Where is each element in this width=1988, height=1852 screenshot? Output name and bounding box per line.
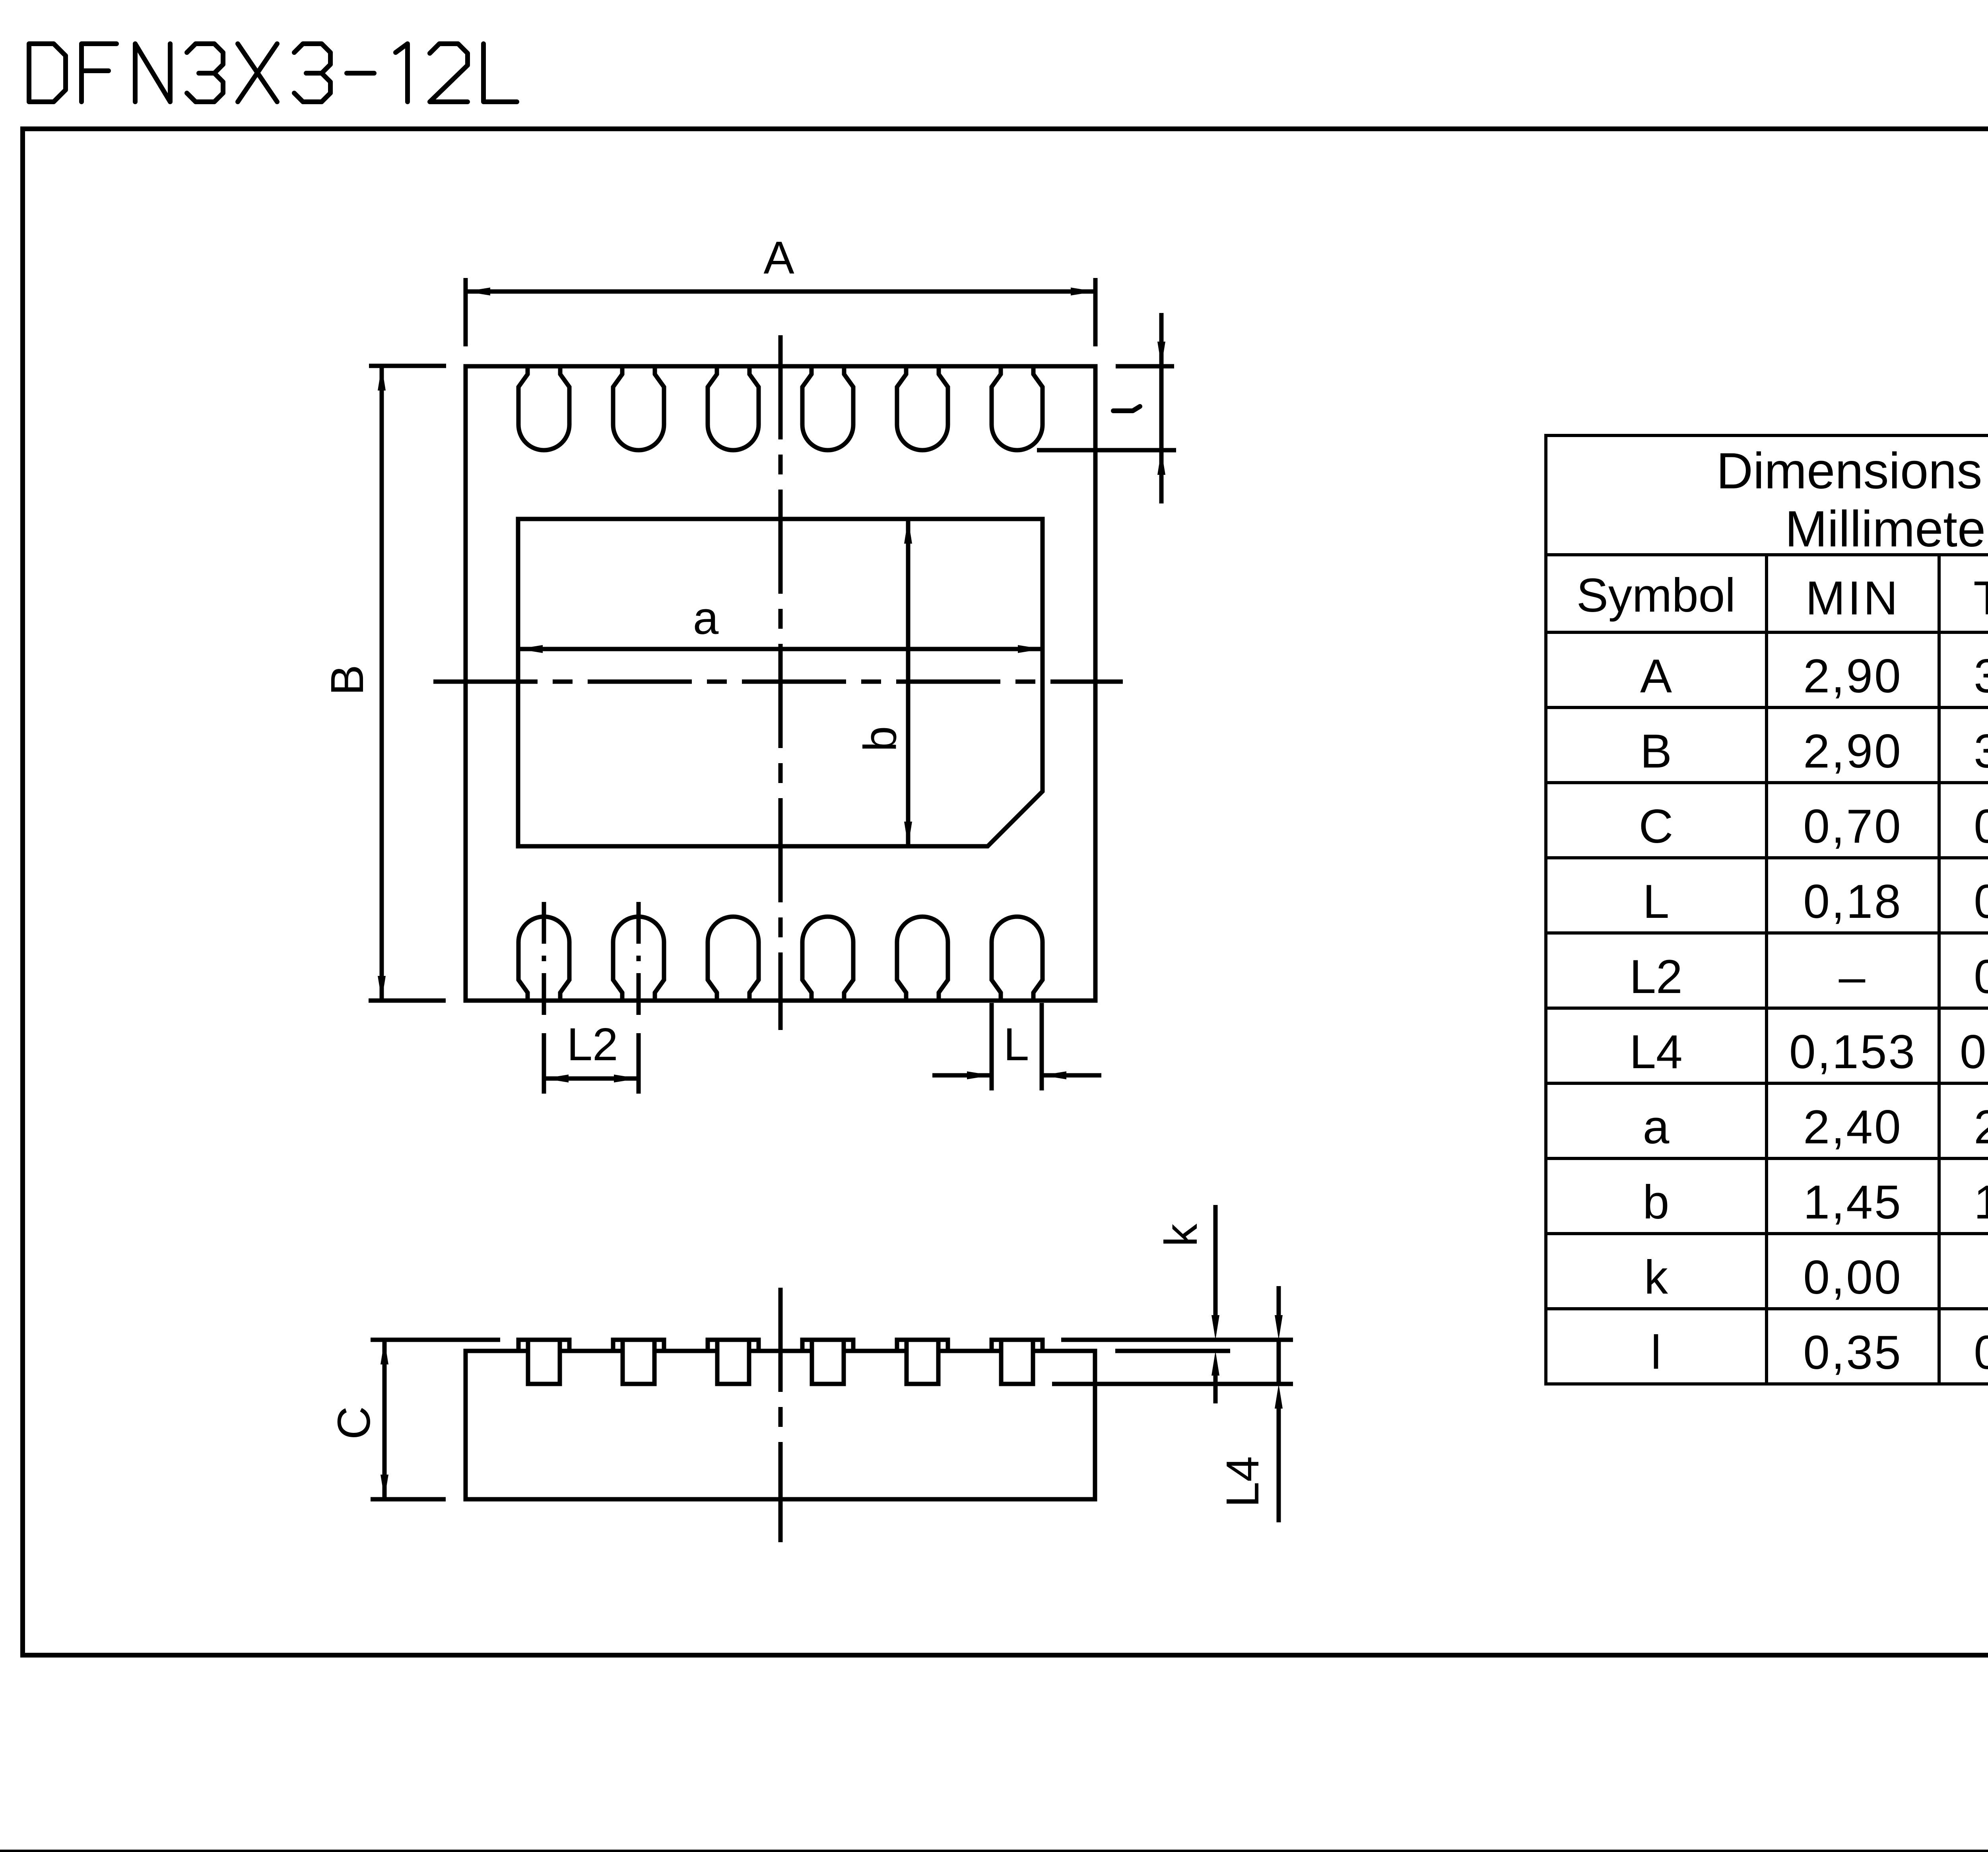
svg-text:k: k xyxy=(1644,1251,1668,1304)
svg-text:2,90: 2,90 xyxy=(1803,725,1903,778)
svg-text:L2: L2 xyxy=(1629,950,1682,1003)
svg-text:0,40: 0,40 xyxy=(1974,1326,1988,1379)
svg-text:2,50: 2,50 xyxy=(1974,1100,1988,1154)
svg-text:3,00: 3,00 xyxy=(1974,649,1988,703)
svg-text:0,23: 0,23 xyxy=(1974,875,1988,928)
svg-text:L2: L2 xyxy=(567,1018,618,1070)
svg-text:0,75: 0,75 xyxy=(1974,800,1988,853)
svg-text:B: B xyxy=(1640,725,1672,778)
svg-text:A: A xyxy=(1640,649,1672,703)
svg-text:Millimeters: Millimeters xyxy=(1785,501,1988,558)
svg-text:a: a xyxy=(693,592,719,644)
svg-text:a: a xyxy=(1643,1100,1670,1154)
svg-text:Dimensions: Dimensions xyxy=(1716,443,1982,499)
svg-text:MIN: MIN xyxy=(1806,571,1900,625)
svg-text:0,35: 0,35 xyxy=(1803,1326,1903,1379)
svg-text:1,55: 1,55 xyxy=(1974,1176,1988,1229)
svg-text:2,90: 2,90 xyxy=(1803,649,1903,703)
svg-text:L4: L4 xyxy=(1217,1456,1268,1507)
svg-text:0,70: 0,70 xyxy=(1803,800,1903,853)
svg-text:b: b xyxy=(1643,1176,1670,1229)
svg-text:0,18: 0,18 xyxy=(1803,875,1903,928)
svg-text:1,45: 1,45 xyxy=(1803,1176,1903,1229)
svg-text:L4: L4 xyxy=(1629,1025,1682,1079)
svg-text:b: b xyxy=(854,726,906,752)
svg-text:0,153: 0,153 xyxy=(1789,1025,1916,1079)
svg-text:Symbol: Symbol xyxy=(1576,569,1736,622)
svg-text:–: – xyxy=(1839,950,1867,1003)
svg-text:C: C xyxy=(1639,800,1673,853)
svg-text:L: L xyxy=(1643,875,1670,928)
svg-text:C: C xyxy=(328,1406,380,1440)
svg-text:0,00: 0,00 xyxy=(1803,1251,1903,1304)
svg-text:TYP: TYP xyxy=(1973,571,1988,625)
svg-text:3,00: 3,00 xyxy=(1974,725,1988,778)
svg-text:B: B xyxy=(321,665,373,695)
svg-text:L: L xyxy=(1004,1018,1029,1070)
svg-text:0,203: 0,203 xyxy=(1960,1025,1988,1079)
svg-text:0,45: 0,45 xyxy=(1974,950,1988,1003)
svg-text:A: A xyxy=(763,232,794,284)
svg-text:l: l xyxy=(1651,1326,1662,1379)
svg-text:k: k xyxy=(1155,1223,1207,1247)
svg-text:2,40: 2,40 xyxy=(1803,1100,1903,1154)
